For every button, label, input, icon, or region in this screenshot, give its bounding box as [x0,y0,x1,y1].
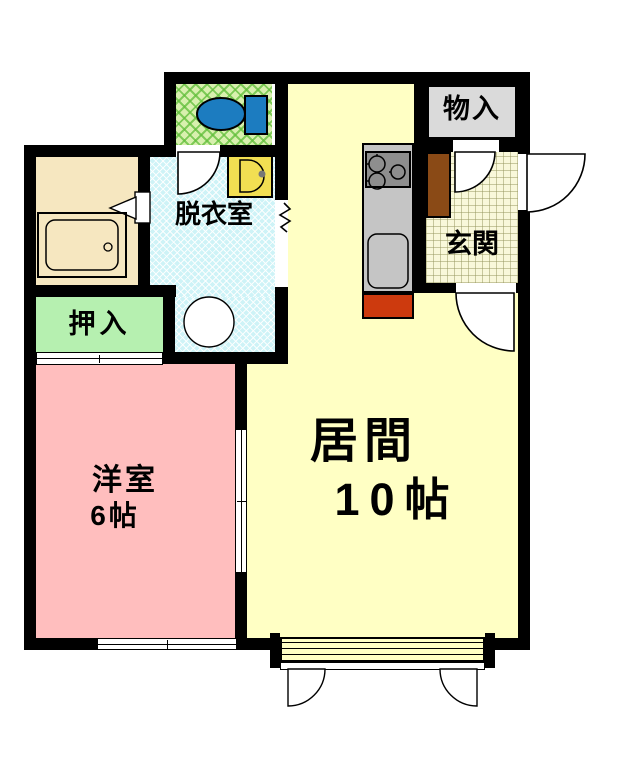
wall-closet-top [24,285,176,297]
sliding-window-western [97,638,237,650]
floor-plan: 居間 10帖 洋室 6帖 脱衣室 押入 玄関 物入 [0,0,628,760]
balcony-post-left [270,633,280,668]
label-entrance: 玄関 [426,231,518,258]
wall-closet-right [163,297,175,364]
door-swing-entry [527,154,585,212]
label-western: 洋室 [60,466,190,496]
wall-left [24,145,36,650]
opening-toilet-door [176,145,220,157]
door-swing-balcony-left [288,669,325,706]
opening-storage-door [453,140,499,152]
balcony-sill [280,662,485,670]
sliding-door-closet [36,352,163,365]
label-dressing: 脱衣室 [150,201,278,227]
label-closet: 押入 [36,311,163,338]
room-living-lower [247,364,288,638]
label-western-size: 6帖 [55,502,175,530]
appliance-space-icon [362,293,414,319]
wall-top [164,72,530,84]
wall-bath-right [138,157,150,297]
kitchen-stove [365,151,411,188]
wall-bath-top [24,145,176,157]
label-storage: 物入 [426,96,518,123]
wall-entrance-left [414,72,426,293]
wall-closet-stub [24,352,36,364]
balcony-step-icon [280,637,485,662]
balcony-post-right [485,633,495,668]
label-living-size: 10帖 [317,477,477,522]
room-dressing-lower [175,297,275,352]
label-living: 居間 [299,418,429,466]
wall-dressing-bottom [164,352,288,364]
wash-basin-unit [227,151,273,198]
opening-entry-door [518,153,530,211]
room-bathroom [36,157,138,285]
opening-entrance-living [456,283,516,293]
shoe-cabinet-icon [426,152,451,218]
door-swing-balcony-right [440,669,477,706]
sliding-door-western-living [235,429,247,573]
room-toilet [176,84,272,145]
